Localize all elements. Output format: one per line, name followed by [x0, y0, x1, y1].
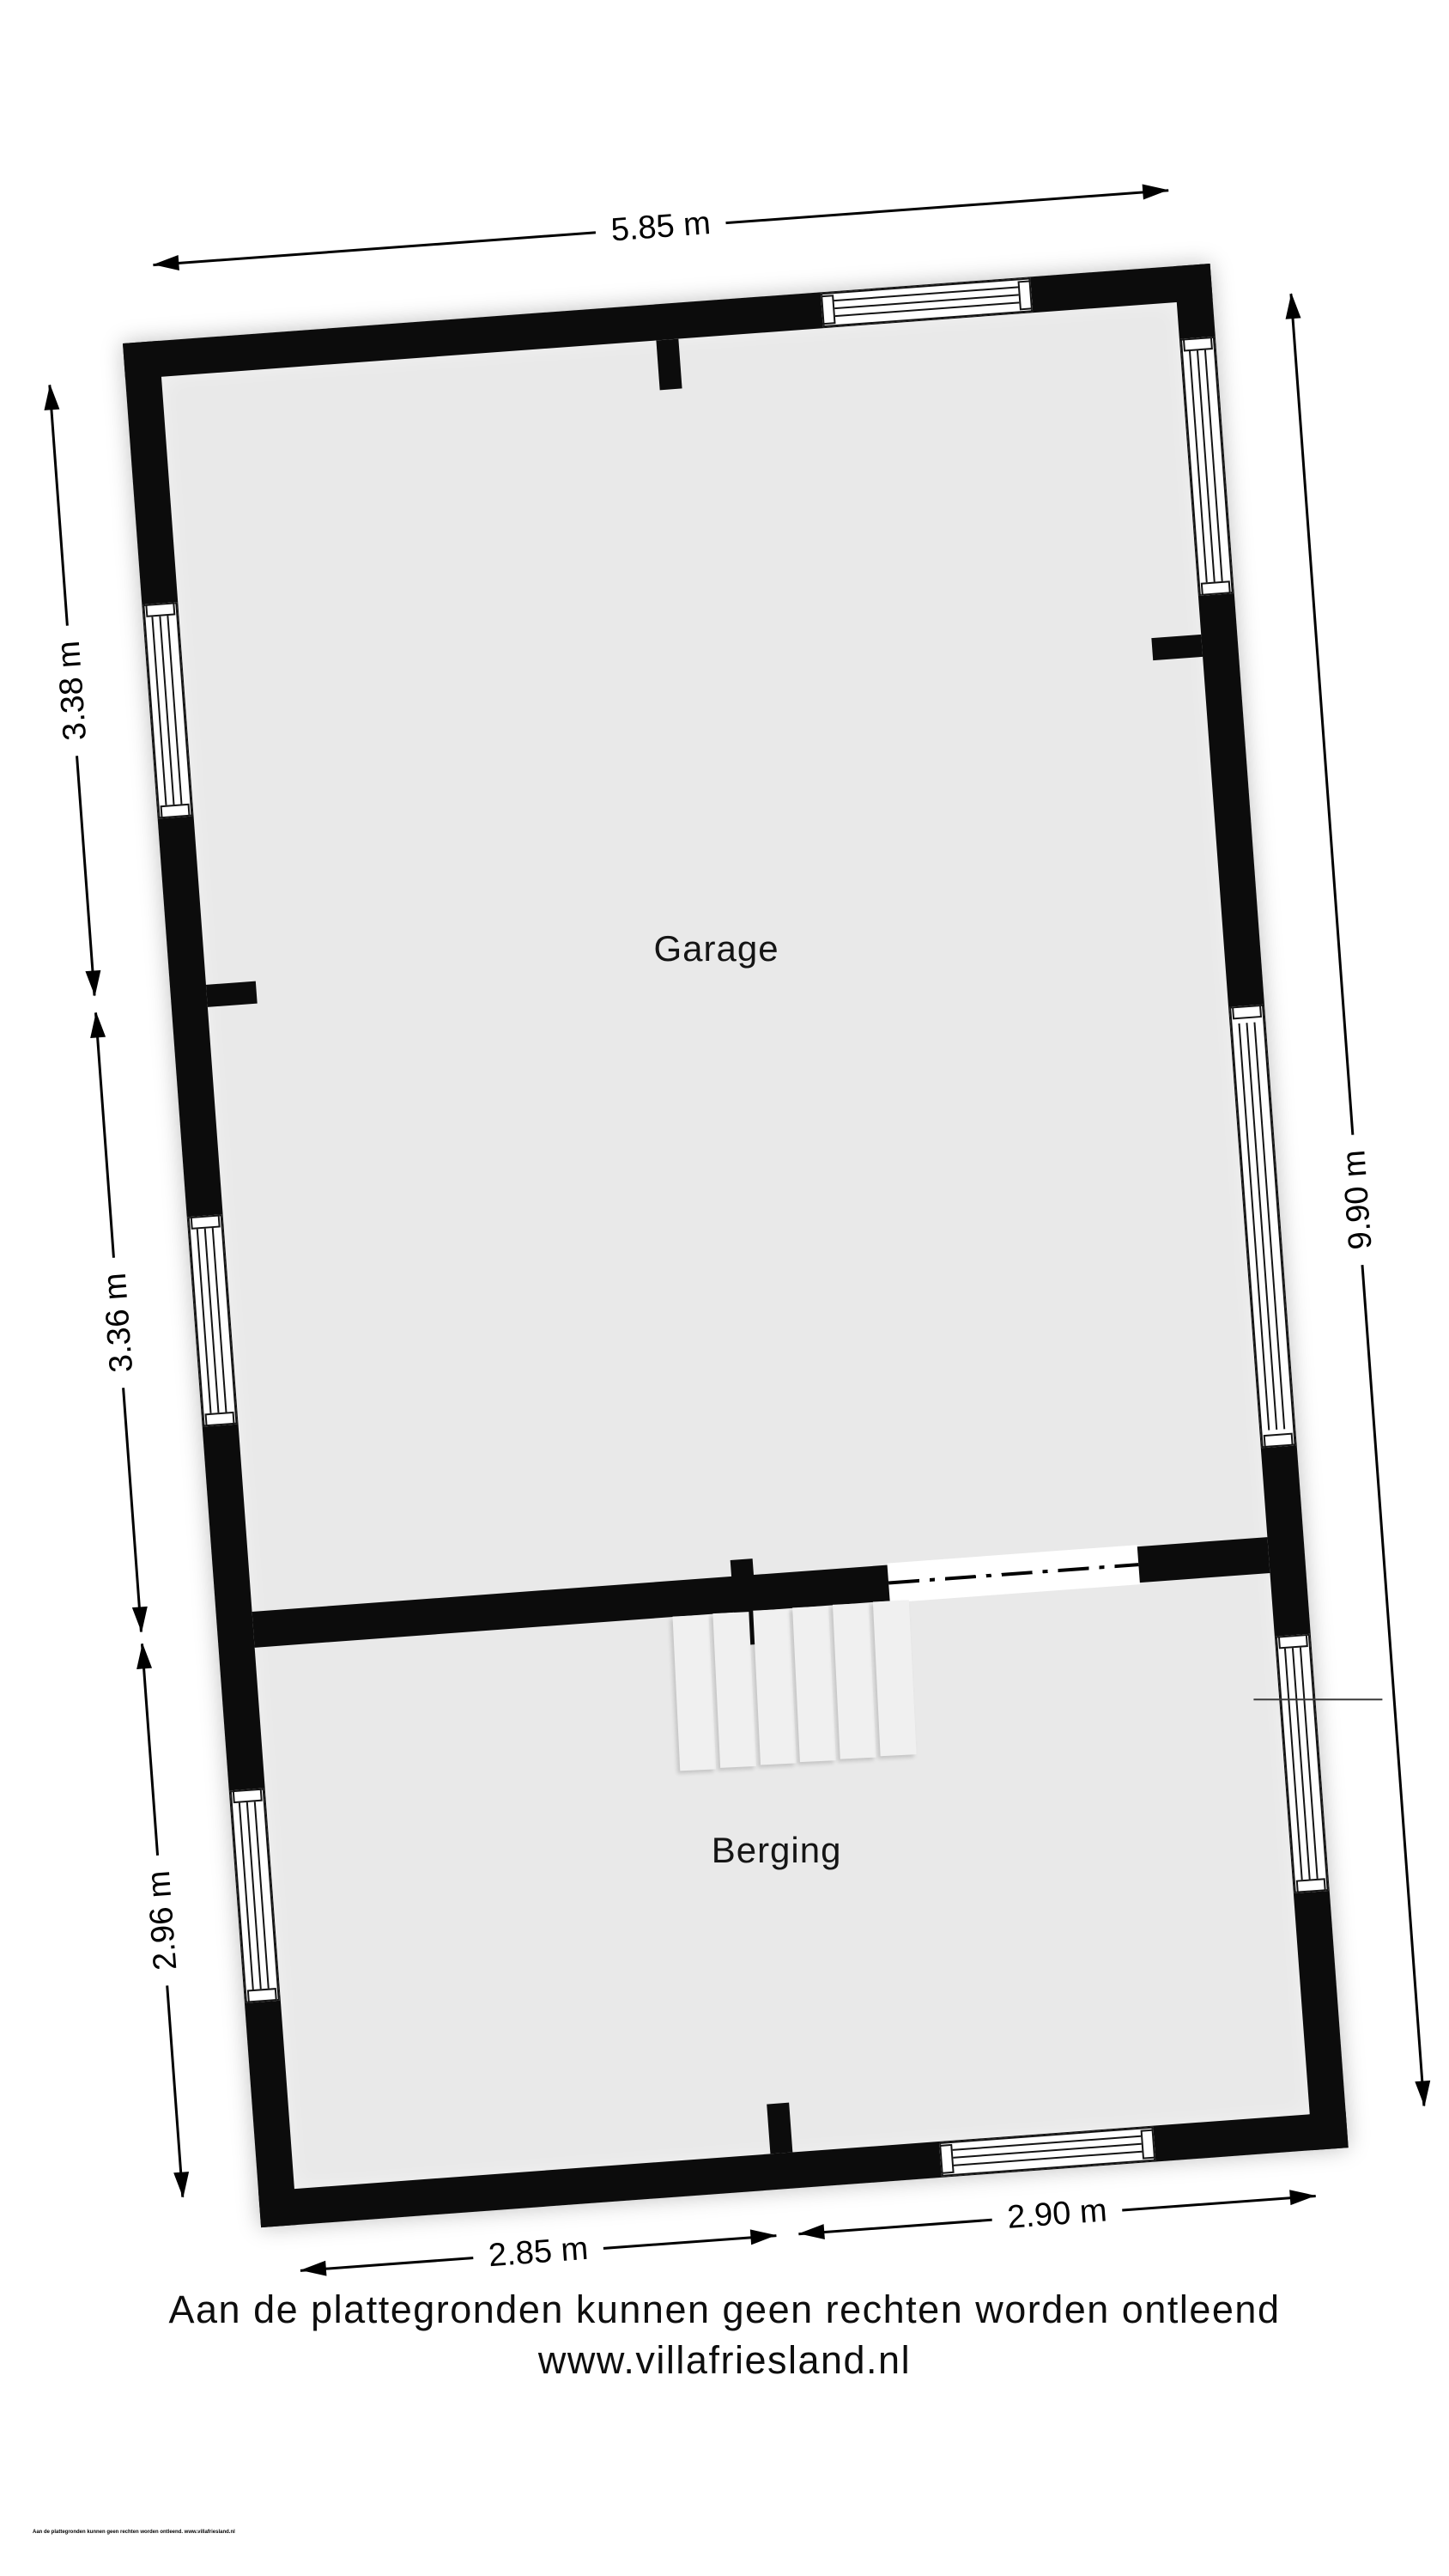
floorplan-rotated-container: Garage Berging 5.85 m 3.38 m 3.36 m 2.96…	[123, 264, 1349, 2227]
dimension-left-middle-label: 3.36 m	[92, 1255, 145, 1388]
footer-website: www.villafriesland.nl	[0, 2335, 1449, 2385]
stair-tread	[673, 1615, 717, 1771]
dimension-top: 5.85 m	[153, 189, 1168, 266]
room-label-garage: Garage	[653, 928, 779, 969]
dimension-left-middle: 3.36 m	[94, 1012, 142, 1631]
dimension-top-label: 5.85 m	[594, 201, 727, 254]
dimension-left-upper-label: 3.38 m	[45, 623, 99, 756]
floor-area	[150, 291, 1320, 2200]
stair-tread	[753, 1609, 797, 1765]
dimension-left-upper: 3.38 m	[48, 385, 95, 995]
dimension-bottom-left-label: 2.85 m	[471, 2227, 604, 2280]
dimension-bottom-left: 2.85 m	[300, 2234, 777, 2272]
room-label-berging: Berging	[712, 1830, 842, 1871]
floorplan-page: Garage Berging 5.85 m 3.38 m 3.36 m 2.96…	[0, 0, 1449, 2576]
footer-disclaimer: Aan de plattegronden kunnen geen rechten…	[0, 2284, 1449, 2335]
section-tick-line	[1253, 1698, 1382, 1700]
dimension-bottom-right-label: 2.90 m	[991, 2188, 1124, 2241]
staircase	[670, 1600, 918, 1771]
wall-stub-left	[206, 981, 258, 1007]
wall-stub-bottom	[767, 2103, 792, 2154]
wall-stub-top	[656, 339, 682, 391]
fineprint: Aan de plattegronden kunnen geen rechten…	[33, 2530, 235, 2535]
footer: Aan de plattegronden kunnen geen rechten…	[0, 2284, 1449, 2386]
stair-tread	[873, 1600, 917, 1756]
dimension-left-lower: 2.96 m	[141, 1643, 184, 2196]
stair-tread	[793, 1606, 837, 1762]
dimension-left-lower-label: 2.96 m	[136, 1854, 190, 1987]
stair-tread	[833, 1603, 876, 1759]
dimension-right-label: 9.90 m	[1331, 1133, 1385, 1267]
wall-stub-right	[1151, 635, 1203, 660]
stair-tread	[712, 1612, 756, 1768]
dimension-bottom-right: 2.90 m	[798, 2195, 1316, 2235]
